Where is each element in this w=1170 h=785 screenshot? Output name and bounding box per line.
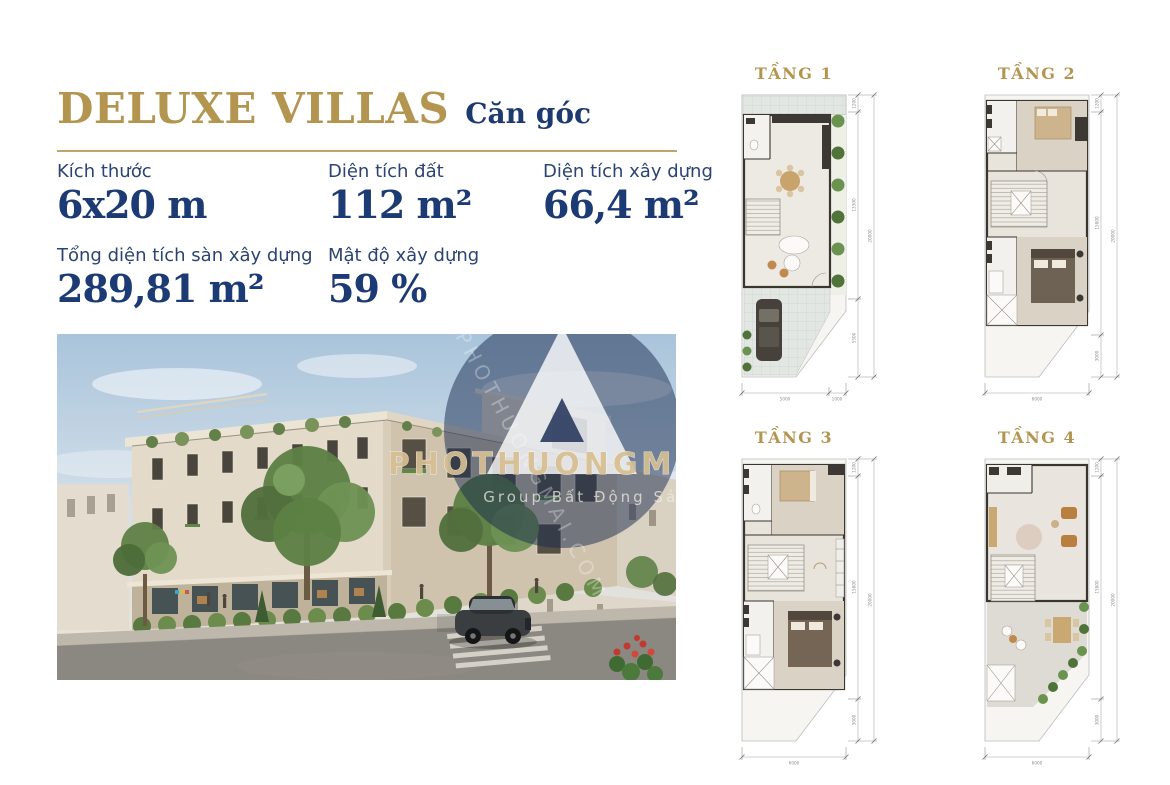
floorplan-4-drawing: 1200 15800 3000 20000 6000 xyxy=(977,451,1137,781)
floorplan-title: TẦNG 3 xyxy=(734,428,854,447)
building-render-photo: PHOTHUONGMAI.COM PHOTHUONGMAI.COM Group … xyxy=(57,334,676,680)
building-render-illustration: PHOTHUONGMAI.COM PHOTHUONGMAI.COM Group … xyxy=(57,334,676,680)
floorplan-title: TẦNG 1 xyxy=(734,64,854,83)
dim-text: 3000 xyxy=(1095,350,1100,361)
spec-kich-thuoc: Kích thước 6x20 m xyxy=(57,161,206,225)
spec-dien-tich-dat: Diện tích đất 112 m² xyxy=(328,161,471,225)
dim-text: 1200 xyxy=(852,98,857,109)
watermark-title: PHOTHUONGMAI.COM xyxy=(388,447,676,482)
floorplan-title: TẦNG 4 xyxy=(977,428,1097,447)
watermark-subtitle: Group Bất Động Sản xyxy=(483,488,676,506)
dim-text: 5500 xyxy=(852,332,857,343)
spec-value: 289,81 m² xyxy=(57,269,313,309)
dim-text: 6000 xyxy=(1032,397,1043,402)
spec-mat-do-xay-dung: Mật độ xây dựng 59 % xyxy=(328,245,479,309)
road-patch xyxy=(237,652,477,680)
dim-text: 1200 xyxy=(1095,462,1100,473)
spec-value: 112 m² xyxy=(328,185,471,225)
specs-row-1: Kích thước 6x20 m Diện tích đất 112 m² D… xyxy=(57,161,677,239)
floorplan-tang-3: TẦNG 3 1 xyxy=(734,428,894,781)
floorplan-tang-1: TẦNG 1 xyxy=(734,64,894,417)
spec-tong-dien-tich-san: Tổng diện tích sàn xây dựng 289,81 m² xyxy=(57,245,313,309)
dim-text: 20000 xyxy=(1111,229,1116,243)
page-header: DELUXE VILLAS Căn góc xyxy=(57,88,591,130)
spec-label: Mật độ xây dựng xyxy=(328,245,479,266)
floorplan-3-drawing: 1200 15800 3000 20000 6000 xyxy=(734,451,894,781)
spec-value: 66,4 m² xyxy=(543,185,713,225)
dim-text: 1000 xyxy=(832,397,843,402)
dim-text: 3000 xyxy=(1095,714,1100,725)
spec-dien-tich-xay-dung: Diện tích xây dựng 66,4 m² xyxy=(543,161,713,225)
specs-row-2: Tổng diện tích sàn xây dựng 289,81 m² Mậ… xyxy=(57,245,677,323)
dim-text: 20000 xyxy=(868,229,873,243)
spec-value: 59 % xyxy=(328,269,479,309)
dim-text: 3000 xyxy=(852,714,857,725)
spec-label: Tổng diện tích sàn xây dựng xyxy=(57,245,313,266)
spec-label: Diện tích đất xyxy=(328,161,471,182)
floorplan-tang-2: TẦNG 2 1200 15 xyxy=(977,64,1137,417)
page-subtitle: Căn góc xyxy=(465,100,591,128)
dim-text: 6000 xyxy=(1032,761,1043,766)
floorplan-2-drawing: 1200 15800 3000 20000 6000 xyxy=(977,87,1137,417)
dim-text: 20000 xyxy=(1111,593,1116,607)
floorplan-1-drawing: 1200 13300 5500 20000 5000 1000 xyxy=(734,87,894,417)
spec-label: Kích thước xyxy=(57,161,206,182)
spec-label: Diện tích xây dựng xyxy=(543,161,713,182)
page-title: DELUXE VILLAS xyxy=(57,88,449,130)
dim-text: 20000 xyxy=(868,593,873,607)
page: { "colors": { "gold": "#b3954f", "navy":… xyxy=(0,0,1170,785)
dim-text: 1200 xyxy=(852,462,857,473)
dim-text: 15800 xyxy=(1095,580,1100,594)
dim-text: 1200 xyxy=(1095,98,1100,109)
dim-text: 6000 xyxy=(789,761,800,766)
dim-text: 5000 xyxy=(780,397,791,402)
gold-divider xyxy=(57,150,677,152)
dim-text: 15800 xyxy=(852,580,857,594)
dim-text: 13300 xyxy=(852,198,857,212)
dim-text: 15800 xyxy=(1095,216,1100,230)
floorplan-tang-4: TẦNG 4 1200 15800 xyxy=(977,428,1137,781)
shop-sign xyxy=(175,590,189,594)
spec-value: 6x20 m xyxy=(57,185,206,225)
car-top-view xyxy=(756,299,782,361)
floorplan-title: TẦNG 2 xyxy=(977,64,1097,83)
